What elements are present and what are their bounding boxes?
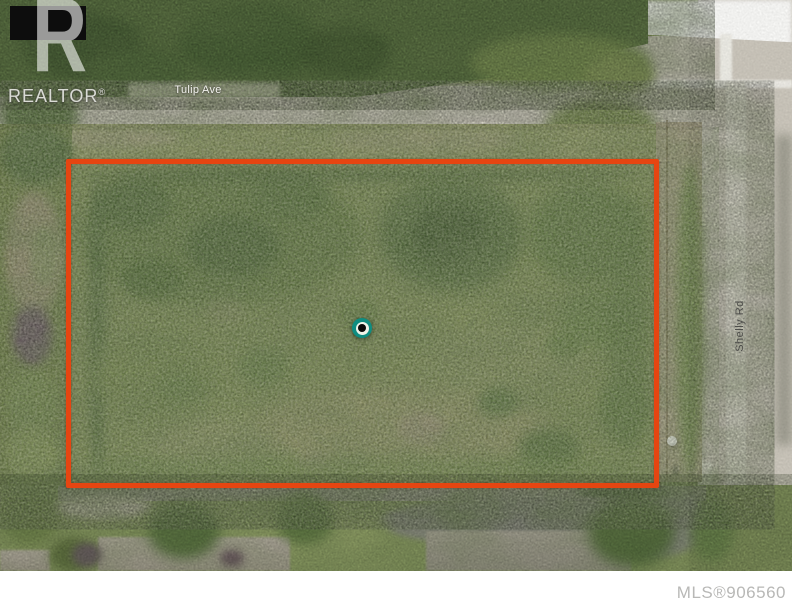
marker-ring <box>356 322 369 335</box>
road-marking <box>720 34 732 86</box>
road-marking <box>540 80 792 88</box>
tree-blob <box>276 493 334 545</box>
boulevard-strip <box>656 122 702 482</box>
utility-line <box>666 120 668 482</box>
purple-tree-blob <box>220 550 244 567</box>
dirt-patch <box>330 128 520 152</box>
road-marking <box>300 83 545 87</box>
registered-mark: ® <box>98 87 106 97</box>
dirt-patch <box>50 128 180 148</box>
road-shadow <box>776 135 792 445</box>
shrub-blob <box>4 372 58 432</box>
utility-pole-shadow <box>673 466 678 475</box>
shrub-blob <box>470 35 650 90</box>
purple-tree-blob <box>72 543 102 567</box>
road-tulip <box>0 86 792 126</box>
house-roof <box>0 550 50 571</box>
house-roof <box>426 531 631 571</box>
corner-grass-mound <box>545 98 657 160</box>
shrub-blob <box>6 425 58 483</box>
back-lane <box>58 486 706 501</box>
street-label-tulip: Tulip Ave <box>150 84 246 96</box>
tree-blob <box>690 498 734 562</box>
realtor-brand-text: REALTOR <box>8 86 98 106</box>
neighbor-yard-left <box>0 124 72 571</box>
property-marker-icon <box>352 318 372 338</box>
utility-pole <box>667 436 677 446</box>
neighbor-strip-bottom <box>0 485 792 571</box>
driveway <box>378 497 678 547</box>
street-label-shelly: Shelly Rd <box>712 298 768 354</box>
road-shelly <box>698 0 792 571</box>
driveway <box>600 486 710 556</box>
boulevard-grass <box>676 162 704 477</box>
roadside-grass <box>772 498 792 571</box>
dirt-patch <box>6 192 62 317</box>
house-roof <box>98 537 290 571</box>
tree-canopy <box>0 0 648 97</box>
street-label-shelly-text: Shelly Rd <box>734 300 746 352</box>
lawn-patch <box>0 485 60 545</box>
sidewalk <box>52 496 152 518</box>
aerial-photo: Tulip Ave Shelly Rd R REALTOR® <box>0 0 792 571</box>
road-intersection <box>600 36 792 92</box>
realtor-wordmark: REALTOR® <box>8 86 106 107</box>
realtor-logo-letter: R <box>32 0 87 88</box>
hedge <box>575 487 670 499</box>
shrub-blob <box>585 55 655 95</box>
tree-blob <box>0 495 64 571</box>
tree-blob <box>300 25 390 80</box>
grass-patch <box>30 225 60 285</box>
tree-blob <box>148 503 220 559</box>
marker-dot <box>358 324 366 332</box>
tree-blob <box>588 496 676 568</box>
listing-image: Tulip Ave Shelly Rd R REALTOR® MLS®90656… <box>0 0 792 612</box>
purple-tree-blob <box>12 305 52 365</box>
sidewalk <box>698 462 712 571</box>
white-clearing <box>605 0 792 48</box>
tree-blob <box>180 5 320 80</box>
tree-blob <box>50 538 94 571</box>
footer-band: MLS®906560 <box>0 571 792 612</box>
grass-patch <box>580 132 670 158</box>
tree-blob <box>0 126 72 184</box>
lawn-patch <box>140 502 390 560</box>
mls-number: MLS®906560 <box>677 583 786 603</box>
curb-line <box>0 122 705 125</box>
